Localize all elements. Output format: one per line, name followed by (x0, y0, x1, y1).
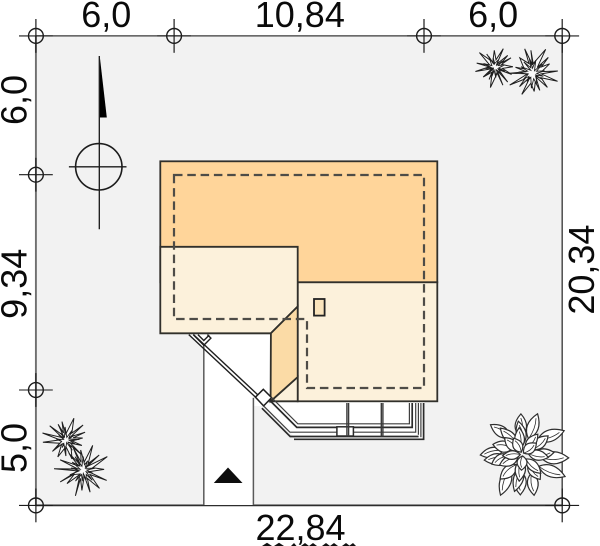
svg-text:6,0: 6,0 (468, 0, 518, 35)
svg-text:10,84: 10,84 (255, 0, 345, 35)
svg-text:6,0: 6,0 (81, 0, 131, 35)
svg-text:22,84: 22,84 (255, 507, 345, 546)
svg-text:6,0: 6,0 (0, 75, 35, 125)
svg-text:20,34: 20,34 (561, 225, 600, 315)
svg-text:5,0: 5,0 (0, 423, 35, 473)
svg-text:9,34: 9,34 (0, 249, 35, 319)
